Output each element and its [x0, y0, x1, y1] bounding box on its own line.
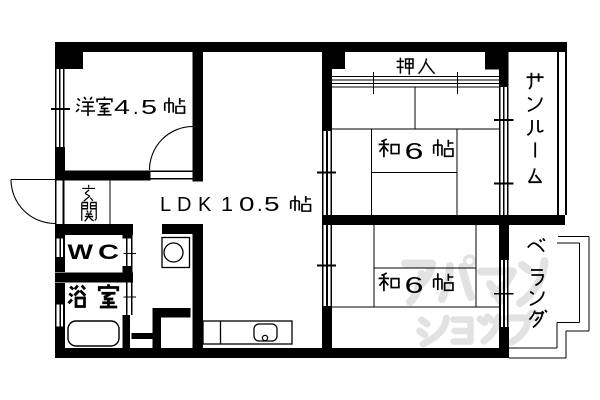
svg-text:0: 0 [239, 194, 255, 216]
svg-text:5: 5 [141, 97, 157, 119]
svg-text:K: K [198, 194, 212, 216]
svg-text:6: 6 [405, 138, 424, 164]
svg-text:6: 6 [405, 272, 424, 298]
svg-text:.: . [133, 97, 139, 119]
svg-text:1: 1 [221, 194, 233, 216]
svg-text:4: 4 [114, 97, 130, 119]
svg-text:L: L [160, 194, 171, 216]
svg-text:C: C [98, 241, 119, 264]
svg-text:W: W [68, 241, 94, 264]
svg-text:.: . [257, 194, 263, 216]
svg-text:D: D [177, 194, 191, 216]
svg-text:5: 5 [264, 194, 280, 216]
